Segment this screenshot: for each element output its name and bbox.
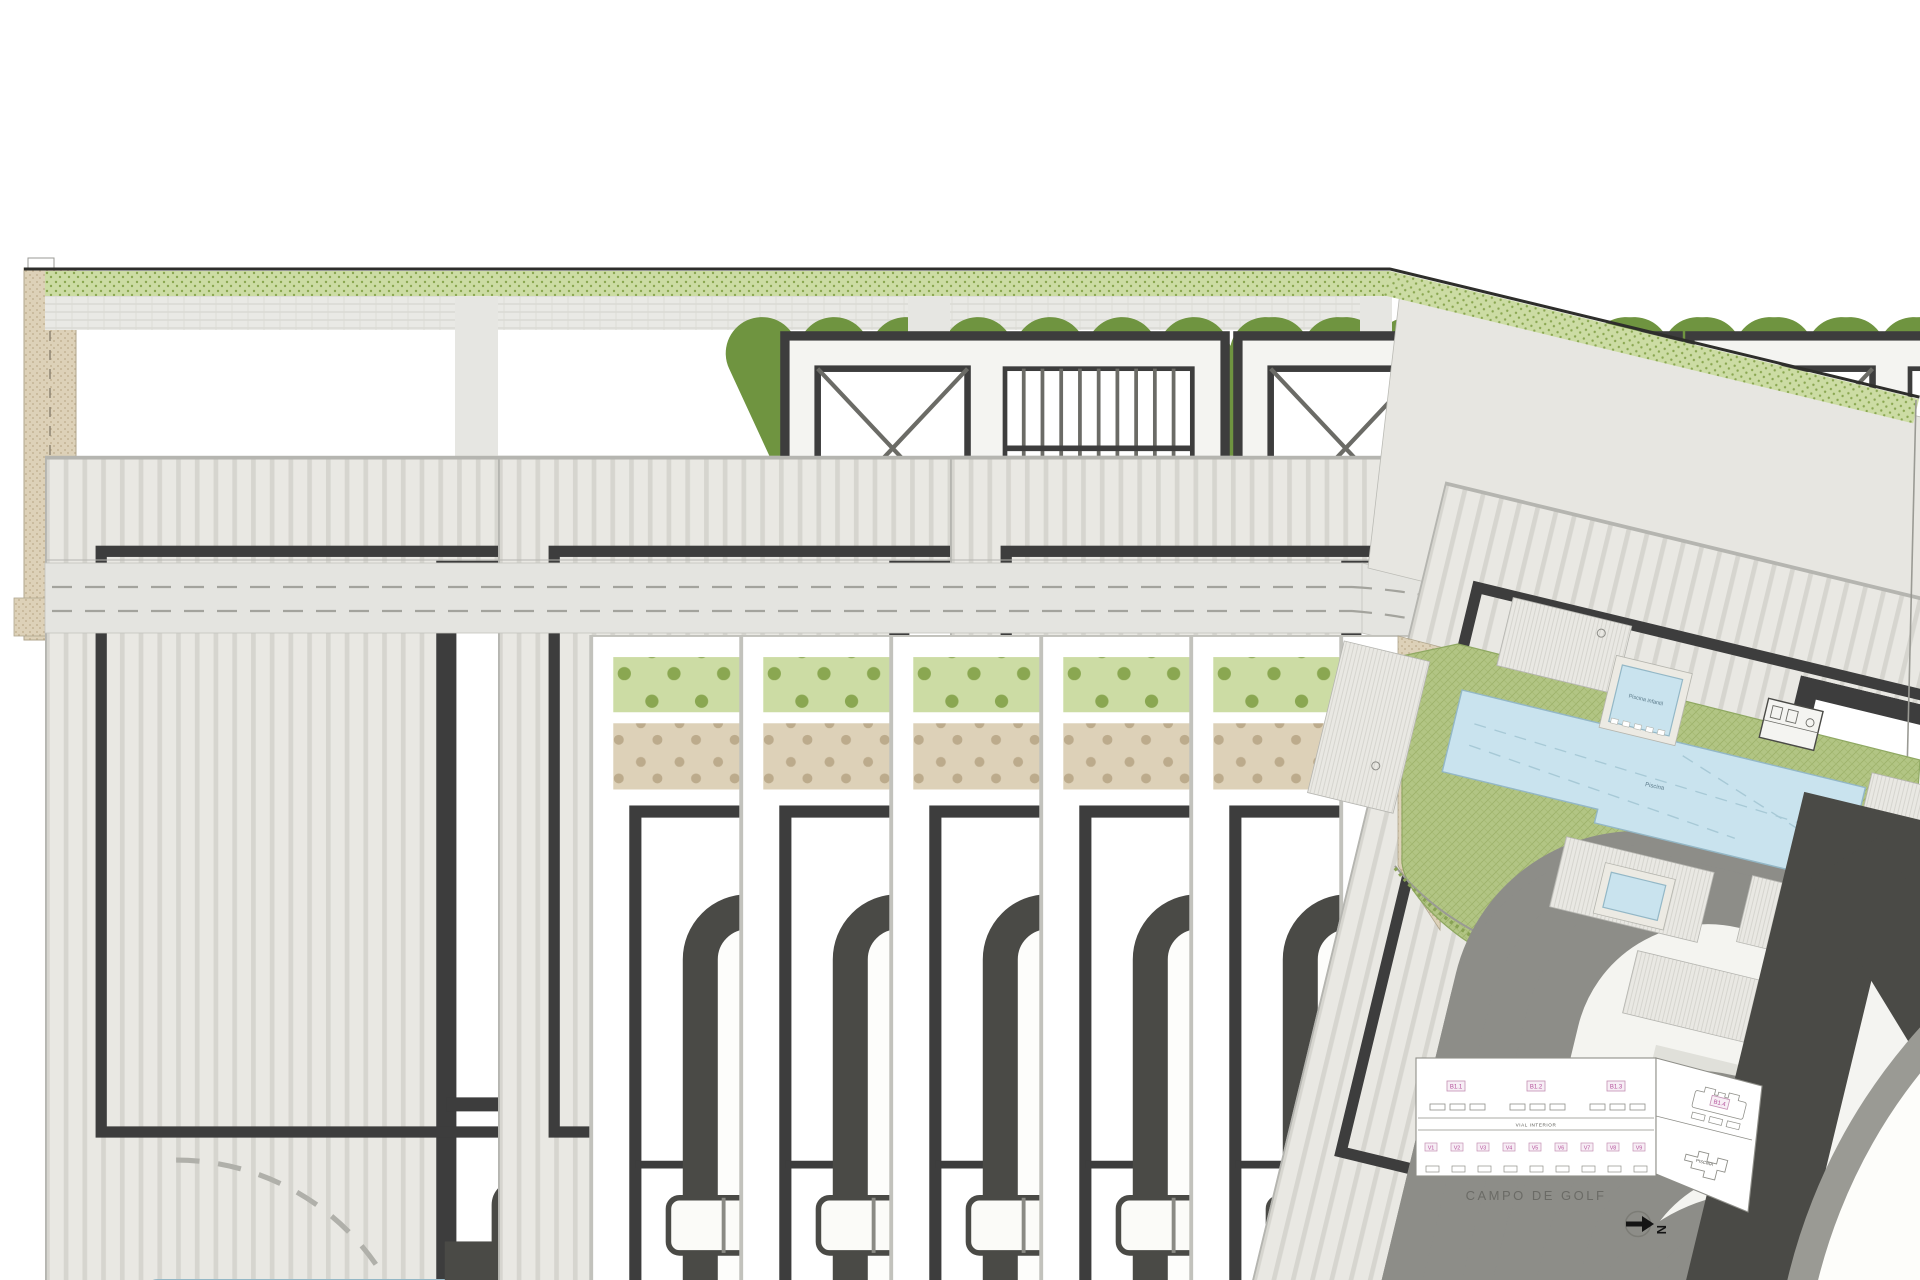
keyplan-label-v3: V3	[1480, 1145, 1487, 1151]
keyplan-label-v6: V6	[1558, 1145, 1565, 1151]
keyplan-label-v9: V9	[1636, 1145, 1643, 1151]
site-plan-page: Piscina Piscina infantil	[0, 0, 1920, 1280]
keyplan-road-label: VIAL INTERIOR	[1516, 1123, 1557, 1128]
keyplan-label-b11: B1.1	[1450, 1085, 1463, 1091]
keyplan-label-v5: V5	[1532, 1145, 1539, 1151]
keyplan-label-v4: V4	[1506, 1145, 1513, 1151]
keyplan-label-v7: V7	[1584, 1145, 1591, 1151]
keyplan-label-b12: B1.2	[1530, 1085, 1543, 1091]
keyplan-label-v1: V1	[1428, 1145, 1435, 1151]
keyplan-golf-label: CAMPO DE GOLF	[1466, 1188, 1607, 1203]
keyplan-label-v2: V2	[1454, 1145, 1461, 1151]
keyplan-label-b13: B1.3	[1610, 1085, 1623, 1091]
keyplan-label-v8: V8	[1610, 1145, 1617, 1151]
site-plan-drawing: Piscina Piscina infantil	[0, 0, 1920, 1280]
north-arrow-label: N	[1654, 1225, 1669, 1234]
